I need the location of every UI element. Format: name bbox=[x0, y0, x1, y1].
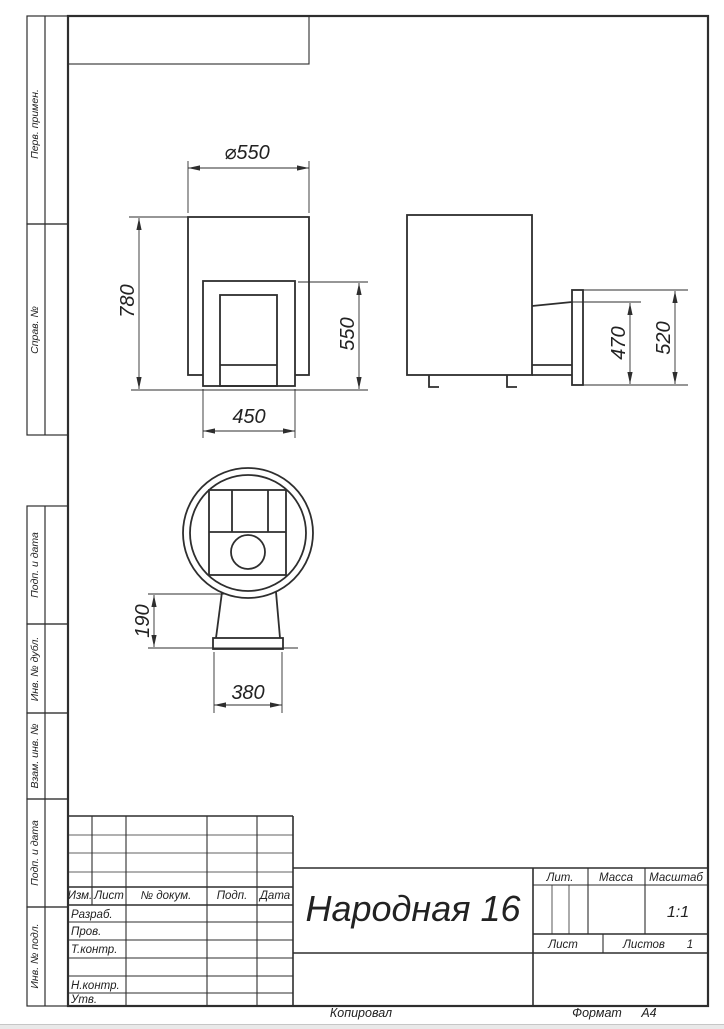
tb-list-label: Лист bbox=[547, 939, 578, 951]
format-label: Формат bbox=[572, 1006, 622, 1020]
dim-side-flange-height: 520 bbox=[653, 321, 675, 354]
margin-label-inv-podl: Инв. № подл. bbox=[29, 923, 41, 988]
tb-row-utv: Утв. bbox=[70, 994, 97, 1006]
margin-label-sprav-no: Справ. № bbox=[29, 306, 41, 354]
tb-row-nkontr: Н.контр. bbox=[71, 980, 120, 992]
copied-label: Копировал bbox=[330, 1006, 392, 1020]
side-view: 470 520 bbox=[407, 215, 688, 387]
tb-listov-label: Листов bbox=[622, 939, 665, 951]
stove-outer-circle bbox=[183, 468, 313, 598]
tb-row-tkontr: Т.контр. bbox=[71, 944, 117, 956]
tb-col-list: Лист bbox=[93, 890, 124, 902]
tb-col-podp: Подп. bbox=[217, 890, 248, 902]
margin-label-podp-data-1: Подп. и дата bbox=[29, 532, 41, 598]
dim-stand-width: 380 bbox=[231, 682, 264, 704]
tb-row-razrab: Разраб. bbox=[71, 909, 113, 921]
dim-opening-height: 550 bbox=[337, 317, 359, 350]
tb-scale-value: 1:1 bbox=[667, 904, 689, 921]
firebox-tunnel-front bbox=[203, 281, 295, 386]
margin-label-vzam-inv: Взам. инв. № bbox=[29, 724, 41, 789]
margin-label-inv-dubl: Инв. № дубл. bbox=[29, 637, 41, 702]
dim-opening-width: 450 bbox=[232, 406, 265, 428]
dim-side-opening-height: 470 bbox=[608, 326, 630, 359]
title-block: Изм. Лист № докум. Подп. Дата Разраб. Пр… bbox=[68, 816, 708, 1006]
tb-listov-value: 1 bbox=[687, 939, 693, 951]
dim-stand-height: 190 bbox=[132, 604, 154, 637]
tb-col-data: Дата bbox=[258, 890, 290, 902]
margin-label-perv-primen: Перв. примен. bbox=[29, 89, 41, 159]
tb-massa-label: Масса bbox=[599, 872, 633, 884]
drawing-canvas: Перв. примен. Справ. № Подп. и дата Инв.… bbox=[0, 0, 724, 1024]
tb-lit-label: Лит. bbox=[546, 872, 574, 884]
stove-body-side bbox=[407, 215, 532, 375]
dim-front-height: 780 bbox=[117, 284, 139, 317]
document-title: Народная 16 bbox=[305, 888, 521, 929]
dim-front-diameter: ⌀550 bbox=[224, 142, 269, 164]
left-margin-boxes: Перв. примен. Справ. № Подп. и дата Инв.… bbox=[27, 16, 68, 1006]
stand-flange bbox=[213, 638, 283, 649]
stove-foot-right bbox=[507, 375, 517, 387]
margin-label-podp-data-2: Подп. и дата bbox=[29, 820, 41, 886]
stove-foot-left bbox=[429, 375, 439, 387]
tb-masshtab-label: Масштаб bbox=[649, 872, 703, 884]
front-view: ⌀550 780 550 450 bbox=[117, 142, 368, 438]
tb-col-izm: Изм. bbox=[68, 890, 93, 902]
drawing-sheet: Перв. примен. Справ. № Подп. и дата Инв.… bbox=[0, 0, 724, 1024]
top-left-designation-box bbox=[68, 16, 309, 64]
bottom-view: 190 380 bbox=[132, 468, 313, 713]
tb-row-prov: Пров. bbox=[71, 926, 101, 938]
tunnel-flange-side bbox=[572, 290, 583, 385]
footer-notes: Копировал Формат А4 bbox=[330, 1006, 657, 1020]
tb-col-doc: № докум. bbox=[141, 890, 192, 902]
format-value: А4 bbox=[640, 1006, 656, 1020]
sheet-frame bbox=[68, 16, 708, 1006]
